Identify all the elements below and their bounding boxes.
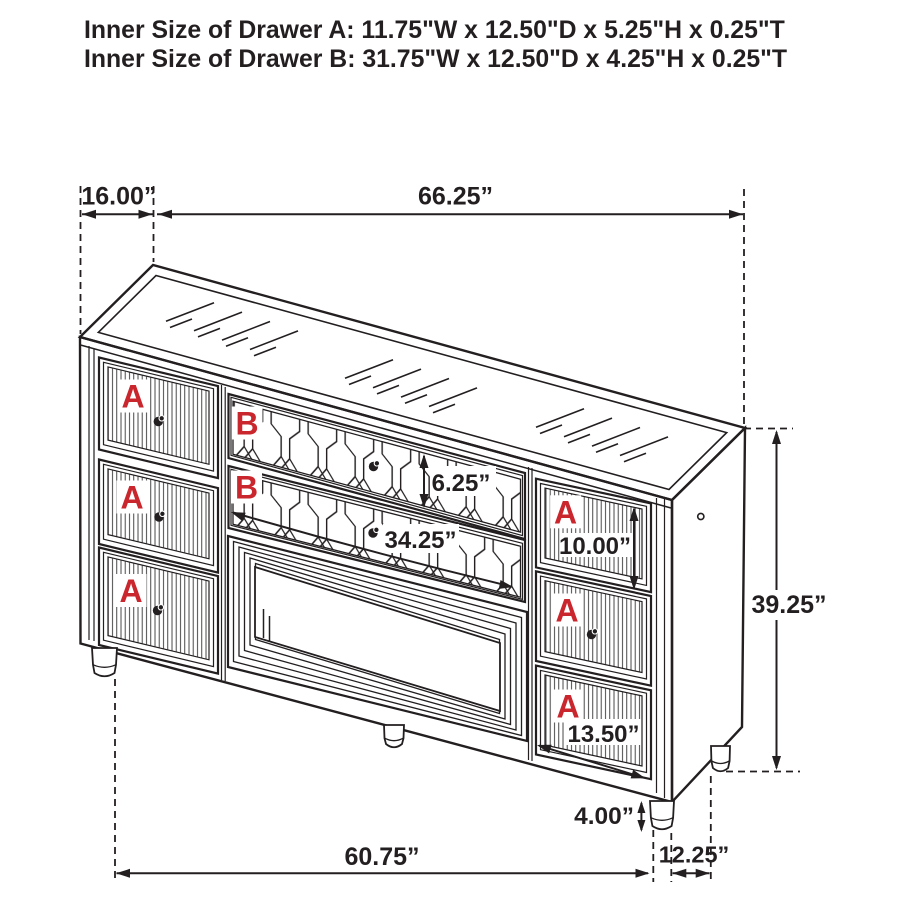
svg-text:B: B [235,406,258,442]
svg-text:Inner Size of Drawer B: 31.75": Inner Size of Drawer B: 31.75"W x 12.50"… [84,46,787,73]
svg-text:16.00”: 16.00” [81,183,156,211]
svg-text:10.00”: 10.00” [559,533,631,560]
svg-text:66.25”: 66.25” [418,183,493,211]
svg-text:60.75”: 60.75” [344,843,419,871]
svg-text:12.25”: 12.25” [659,842,730,868]
svg-text:6.25”: 6.25” [432,470,491,497]
svg-text:13.50”: 13.50” [567,721,639,748]
svg-text:39.25”: 39.25” [751,591,826,619]
svg-text:A: A [121,379,144,415]
svg-text:34.25”: 34.25” [384,527,456,554]
svg-text:Inner Size of Drawer A: 11.75": Inner Size of Drawer A: 11.75"W x 12.50"… [84,17,785,44]
svg-text:4.00”: 4.00” [574,803,634,830]
svg-text:A: A [120,480,143,516]
svg-text:B: B [235,470,258,506]
svg-text:A: A [119,573,142,609]
svg-text:A: A [555,593,578,629]
svg-text:A: A [554,494,577,530]
